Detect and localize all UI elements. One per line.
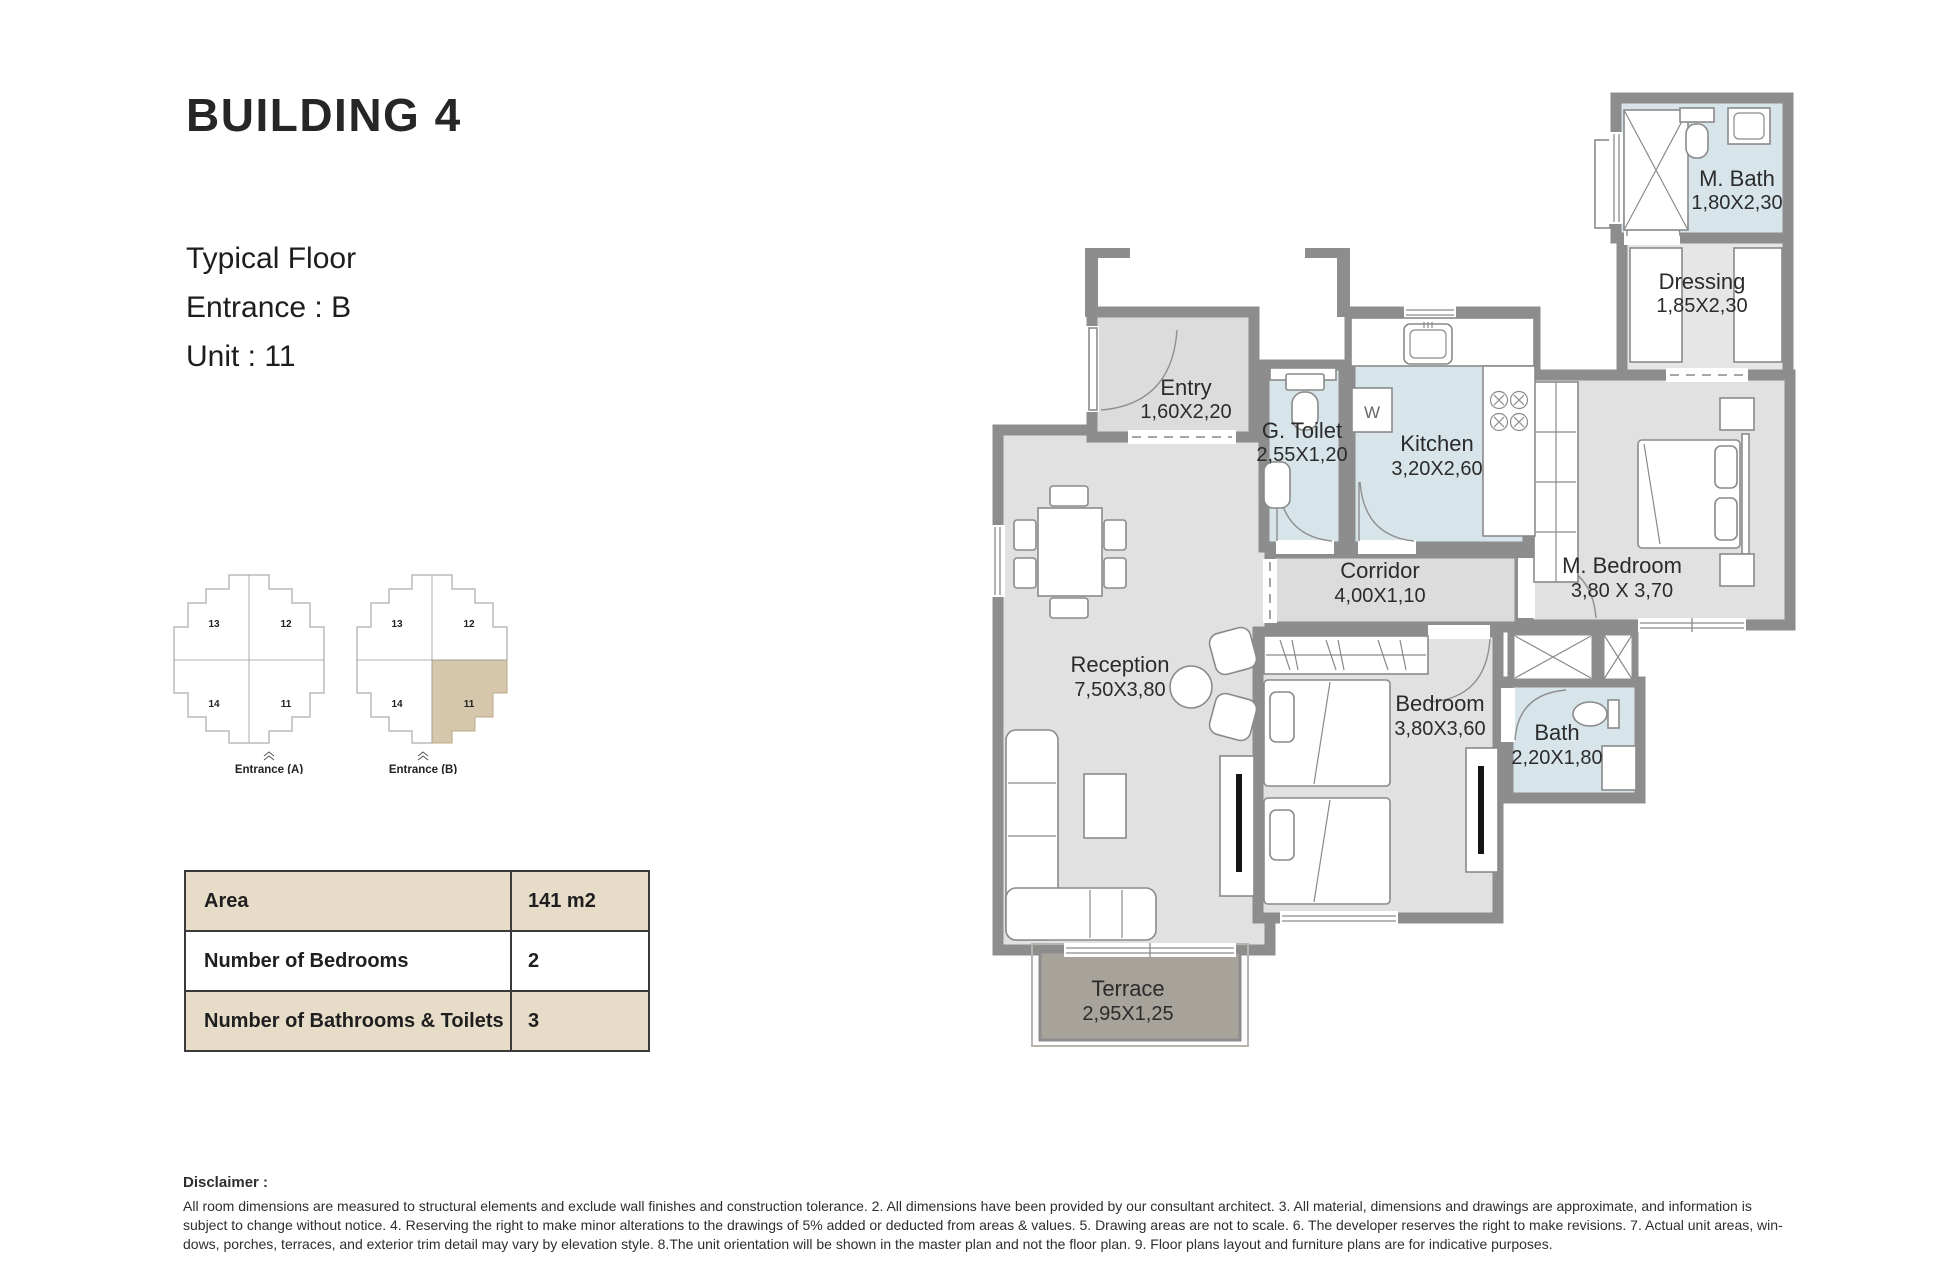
room-label-entry: Entry <box>1160 375 1211 400</box>
window <box>991 525 1005 597</box>
window <box>1609 132 1623 224</box>
room-label-bath: Bath <box>1534 720 1579 745</box>
room-label-terrace: Terrace <box>1091 976 1164 1001</box>
area-value: 141 m2 <box>511 871 649 931</box>
entrance-b-caption: Entrance (B) <box>389 764 458 774</box>
room-label-kitchen: Kitchen <box>1400 431 1473 456</box>
nightstand <box>1720 398 1754 430</box>
open-passage <box>1263 559 1277 623</box>
room-dims-g-toilet: 2,55X1,20 <box>1256 444 1347 466</box>
unit-label: 12 <box>463 619 475 630</box>
room-dims-reception: 7,50X3,80 <box>1074 679 1165 701</box>
room-label-reception: Reception <box>1070 652 1169 677</box>
room-label-m-bedroom: M. Bedroom <box>1562 553 1682 578</box>
unit-label: 13 <box>208 619 220 630</box>
disclaimer: Disclaimer : All room dimensions are mea… <box>183 1174 1783 1254</box>
table-row: Number of Bedrooms 2 <box>185 931 649 991</box>
toilet-tank <box>1286 374 1324 390</box>
unit-label: 11 <box>281 699 292 710</box>
washer: W <box>1352 388 1392 432</box>
bathrooms-label: Number of Bathrooms & Toilets <box>185 991 511 1051</box>
unit-label: 12 <box>280 619 292 630</box>
toilet-bowl <box>1686 124 1708 158</box>
sink <box>1264 462 1290 508</box>
bedrooms-label: Number of Bedrooms <box>185 931 511 991</box>
unit-label: 14 <box>391 699 403 710</box>
washer-label: W <box>1364 403 1380 422</box>
wardrobe <box>1264 636 1428 674</box>
coffee-table <box>1170 666 1212 708</box>
room-label-m-bath: M. Bath <box>1699 166 1775 191</box>
bathrooms-value: 3 <box>511 991 649 1051</box>
room-dims-dressing: 1,85X2,30 <box>1656 295 1747 317</box>
unit-subtitle: Typical Floor Entrance : B Unit : 11 <box>186 234 356 381</box>
m-bedroom-wardrobe <box>1534 382 1578 582</box>
disclaimer-line: All room dimensions are measured to stru… <box>183 1197 1783 1216</box>
room-label-corridor: Corridor <box>1340 558 1419 583</box>
table-row: Number of Bathrooms & Toilets 3 <box>185 991 649 1051</box>
unit-label: 14 <box>208 699 220 710</box>
disclaimer-heading: Disclaimer : <box>183 1174 1783 1191</box>
window <box>1280 911 1398 925</box>
wall-stub <box>1337 255 1350 317</box>
key-plan-block-a: 13 12 14 11 Entrance (A) <box>174 575 324 774</box>
unit-info-table: Area 141 m2 Number of Bedrooms 2 Number … <box>184 870 650 1052</box>
unit-label: 11 <box>464 699 475 710</box>
disclaimer-line: dows, porches, terraces, and exterior tr… <box>183 1235 1783 1254</box>
building-key-plan: 13 12 14 11 Entrance (A) 13 12 14 11 Ent… <box>170 562 518 774</box>
sink <box>1602 746 1636 790</box>
stairs-icon <box>418 752 428 760</box>
toilet-tank <box>1680 108 1714 122</box>
room-dims-terrace: 2,95X1,25 <box>1082 1003 1173 1025</box>
room-label-dressing: Dressing <box>1659 269 1746 294</box>
wall-stub <box>1085 255 1098 317</box>
room-label-g-toilet: G. Toilet <box>1262 418 1342 443</box>
subtitle-unit: Unit : 11 <box>186 332 356 381</box>
toilet-tank <box>1608 700 1619 728</box>
area-label: Area <box>185 871 511 931</box>
room-dims-corridor: 4,00X1,10 <box>1334 585 1425 607</box>
entrance-a-caption: Entrance (A) <box>235 764 304 774</box>
window <box>1404 305 1456 319</box>
wall-stub <box>1085 248 1130 258</box>
subtitle-floor: Typical Floor <box>186 234 356 283</box>
room-dims-m-bath: 1,80X2,30 <box>1691 192 1782 214</box>
disclaimer-line: subject to change without notice. 4. Res… <box>183 1216 1783 1235</box>
stairs-icon <box>264 752 274 760</box>
open-passage <box>1666 368 1748 382</box>
bedrooms-value: 2 <box>511 931 649 991</box>
subtitle-entrance: Entrance : B <box>186 283 356 332</box>
unit-label: 13 <box>391 619 403 630</box>
bay-window <box>1638 618 1746 632</box>
key-plan-block-b: 13 12 14 11 Entrance (B) <box>357 575 507 774</box>
open-passage <box>1128 430 1236 444</box>
single-bed <box>1264 680 1390 786</box>
nightstand <box>1720 554 1754 586</box>
room-dims-bath: 2,20X1,80 <box>1511 747 1602 769</box>
single-bed <box>1264 798 1390 904</box>
page-title: BUILDING 4 <box>186 88 462 142</box>
tv-unit-bedroom <box>1466 748 1498 872</box>
wall-stub <box>1305 248 1350 258</box>
room-dims-m-bedroom: 3,80 X 3,70 <box>1571 580 1673 602</box>
tv-unit-reception <box>1220 756 1254 896</box>
room-dims-kitchen: 3,20X2,60 <box>1391 458 1482 480</box>
floor-plan: W Entry 1,60X2,20 G. Toilet 2,55X1,20 Ki… <box>980 80 1810 1070</box>
room-dims-bedroom: 3,80X3,60 <box>1394 718 1485 740</box>
table-row: Area 141 m2 <box>185 871 649 931</box>
side-table <box>1084 774 1126 838</box>
terrace-sliding-door <box>1064 943 1236 957</box>
room-dims-entry: 1,60X2,20 <box>1140 401 1231 423</box>
room-label-bedroom: Bedroom <box>1395 691 1484 716</box>
stair-shaft <box>1595 140 1610 228</box>
